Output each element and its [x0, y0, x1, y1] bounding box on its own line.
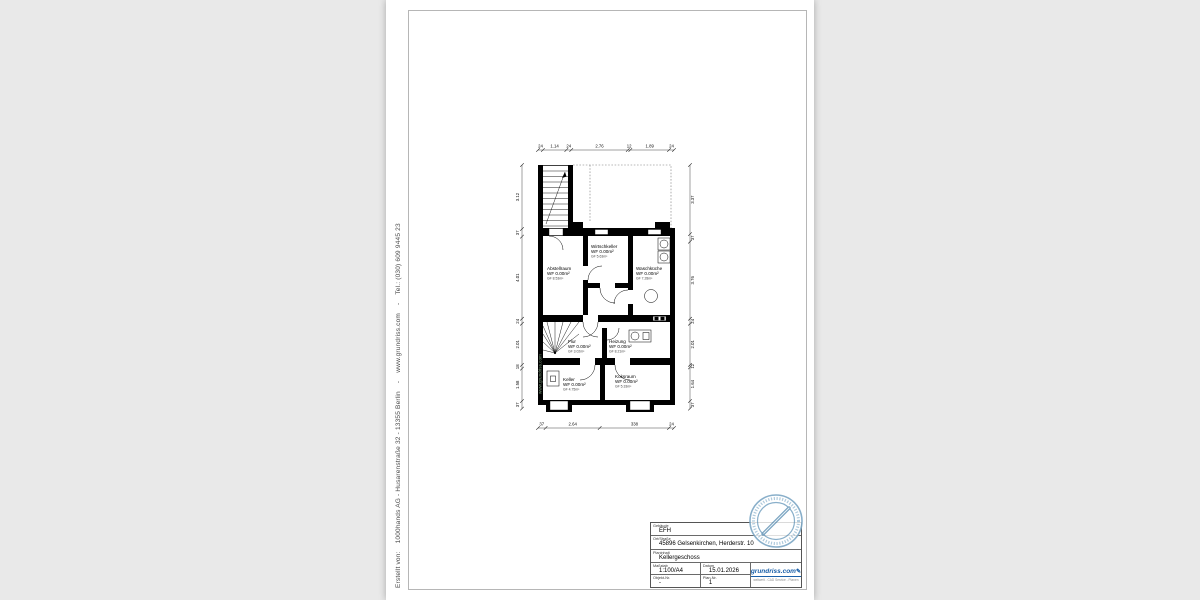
room-koksraum-gf: GF 5.33m² — [615, 385, 632, 389]
quality-stamp-icon — [747, 492, 805, 550]
room-abstellraum-gf: GF 8.53m² — [547, 277, 564, 281]
plan-nr-value: 1 — [709, 580, 748, 587]
dim-top-3: 2.76 — [595, 144, 604, 149]
dim-left-3: 24 — [515, 318, 520, 323]
dim-top-5: 1.89 — [646, 144, 655, 149]
room-keller-wf: WF 0.00m² — [563, 382, 586, 387]
dim-left-1: 37 — [515, 230, 520, 235]
dim-right-5: 12 — [690, 363, 695, 368]
dim-left-4: 2.01 — [515, 340, 520, 349]
dimension-labels-right: 3.37 37 3.76 24 2.01 12 1.64 37 — [690, 195, 695, 407]
room-wirtschkeller-gf: GF 5.63m² — [591, 255, 608, 259]
pen-icon: ✎ — [796, 569, 801, 575]
blueprint-document: Erstellt von: 1000hands AG - Husarenstra… — [0, 0, 1200, 600]
dimension-labels-left: 3.12 37 4.01 24 2.01 18 1.58 37 — [515, 192, 520, 407]
dim-left-0: 3.12 — [515, 192, 520, 201]
plan-watermark: www.grundriss.com — [538, 354, 543, 394]
dim-right-3: 24 — [690, 318, 695, 323]
dim-top-1: 1.14 — [550, 144, 559, 149]
dim-right-0: 3.37 — [690, 195, 695, 204]
title-block-bottom: Maßstab 1:100/A4 Objekt-Nr. - Datum 15.0… — [651, 563, 801, 587]
floor-plan: www.grundriss.com Abstellraum WF 0.00m² … — [505, 138, 705, 440]
objekt-nr-value: - — [659, 580, 698, 587]
logo-cell: grundriss.com✎ weltweit - CAD Service - … — [751, 563, 801, 587]
dim-left-7: 37 — [515, 402, 520, 407]
staircase — [543, 171, 568, 226]
dim-top-6: 24 — [669, 144, 674, 149]
room-heizung-wf: WF 0.00m² — [609, 344, 632, 349]
dim-left-2: 4.01 — [515, 273, 520, 282]
dim-right-2: 3.76 — [690, 276, 695, 285]
dim-right-6: 1.64 — [690, 379, 695, 388]
dim-bottom-2: 338 — [631, 422, 639, 427]
paper-sheet: Erstellt von: 1000hands AG - Husarenstra… — [386, 0, 814, 600]
room-abstellraum-wf: WF 0.00m² — [547, 271, 570, 276]
room-keller-gf: GF 4.75m² — [563, 388, 580, 392]
dashed-building-outline — [573, 165, 671, 228]
dimension-labels-top: 24 1.14 24 2.76 12 1.89 24 — [538, 144, 674, 149]
logo-text: grundriss.com — [751, 568, 796, 575]
dim-bottom-0: 37 — [539, 422, 544, 427]
room-heizung-gf: GF 8.21m² — [609, 350, 626, 354]
room-wirtschkeller-wf: WF 0.00m² — [591, 249, 614, 254]
datum-value: 15.01.2026 — [709, 568, 748, 575]
room-waschkueche-wf: WF 0.00m² — [636, 271, 659, 276]
logo-tagline: weltweit - CAD Service - Planen — [753, 578, 798, 582]
author-side-text: Erstellt von: 1000hands AG - Husarenstra… — [395, 56, 402, 588]
dim-left-6: 1.58 — [515, 380, 520, 389]
cell-plan-nr: Plan-Nr. 1 — [701, 575, 750, 587]
dim-right-7: 37 — [690, 402, 695, 407]
dim-top-4: 12 — [627, 144, 632, 149]
col-massstab-objekt: Maßstab 1:100/A4 Objekt-Nr. - — [651, 563, 701, 587]
col-datum-plan: Datum 15.01.2026 Plan-Nr. 1 — [701, 563, 751, 587]
dimension-ticks — [520, 148, 692, 430]
dimension-labels-bottom: 37 2.64 338 24 — [539, 422, 674, 427]
room-flur-gf: GF 3.02m² — [568, 350, 585, 354]
dimension-lines — [522, 150, 690, 428]
cell-objekt-nr: Objekt-Nr. - — [651, 575, 700, 587]
cell-massstab: Maßstab 1:100/A4 — [651, 563, 700, 575]
dim-right-1: 37 — [690, 235, 695, 240]
dim-left-5: 18 — [515, 364, 520, 369]
dim-top-0: 24 — [538, 144, 543, 149]
dim-top-2: 24 — [566, 144, 571, 149]
grundriss-logo: grundriss.com✎ — [751, 568, 801, 577]
room-flur-wf: WF 0.00m² — [568, 344, 591, 349]
massstab-value: 1:100/A4 — [659, 568, 698, 575]
title-row-planinhalt: Planinhalt Kellergeschoss — [651, 550, 801, 563]
dim-bottom-3: 24 — [669, 422, 674, 427]
dim-bottom-1: 2.64 — [569, 422, 578, 427]
room-waschkueche-gf: GF 7.28m² — [636, 277, 653, 281]
room-koksraum-wf: WF 0.00m² — [615, 379, 638, 384]
dim-right-4: 2.01 — [690, 340, 695, 349]
cell-datum: Datum 15.01.2026 — [701, 563, 750, 575]
planinhalt-value: Kellergeschoss — [659, 555, 799, 562]
